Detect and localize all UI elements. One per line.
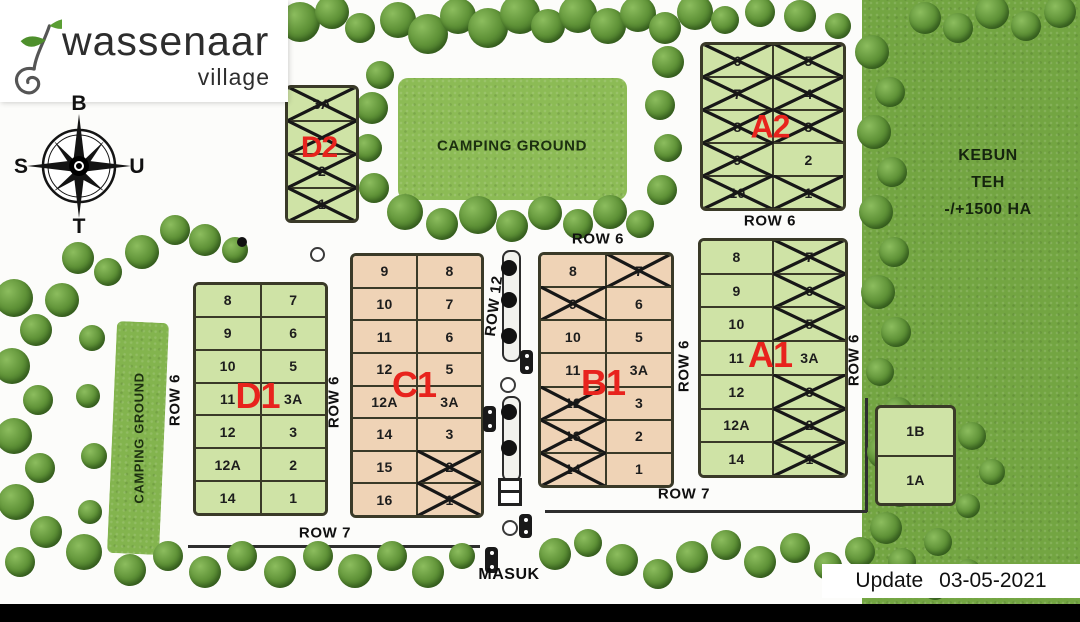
entrance-label: MASUK (470, 566, 548, 584)
row-label-d1-right: ROW 6 (326, 376, 343, 428)
tree-icon (30, 516, 62, 548)
compass-s: S (14, 155, 28, 178)
tree-icon (881, 317, 911, 347)
plot-A2-9: 9 (703, 142, 772, 175)
tree-icon (94, 258, 122, 286)
update-label: Update (855, 569, 923, 593)
crossed-out-marker (772, 374, 847, 410)
plot-B1-9: 9 (541, 286, 605, 319)
plot-B1-5: 5 (607, 319, 671, 352)
plot-number: 16 (376, 492, 392, 508)
plot-number: 1 (289, 490, 297, 506)
site-map: CAMPING GROUND CAMPING GROUND KEBUN TEH … (0, 0, 1080, 622)
compass-b: B (71, 94, 86, 115)
plot-number: 12 (728, 384, 744, 400)
plot-C1-8: 8 (418, 256, 481, 287)
tree-icon (574, 529, 602, 557)
plot-D1-8: 8 (196, 285, 260, 316)
marker-circle-icon (310, 247, 325, 262)
plot-number: 11 (565, 362, 580, 378)
camping-ground-left-label: CAMPING GROUND (132, 372, 147, 503)
plot-number: 2 (635, 428, 643, 444)
plot-C1-16: 16 (353, 482, 416, 515)
plot-B1-13: 13 (541, 419, 605, 452)
tree-icon (189, 224, 221, 256)
compass-rose-icon: B S U T (14, 94, 144, 234)
tree-icon (857, 115, 891, 149)
tree-icon (649, 12, 681, 44)
crossed-out-marker (416, 482, 483, 517)
tree-icon (387, 194, 423, 230)
plot-number: 5 (635, 329, 643, 345)
kebun-teh-label: KEBUN TEH -/+1500 HA (942, 142, 1034, 224)
crossed-out-marker (539, 452, 607, 487)
update-box: Update 03-05-2021 (822, 564, 1080, 598)
plot-number: 14 (728, 451, 744, 467)
plot-C1-1: 1 (418, 482, 481, 515)
block-AB: 1B1A (875, 405, 956, 506)
crossed-out-marker (772, 408, 847, 444)
block-label-A2: A2 (751, 108, 790, 145)
plot-C1-11: 11 (353, 319, 416, 352)
tree-icon (62, 242, 94, 274)
plot-number: 8 (224, 292, 232, 308)
tree-icon (643, 559, 673, 589)
plot-number: 11 (220, 391, 235, 407)
plot-A1-8: 8 (701, 241, 772, 273)
compass-u: U (129, 155, 144, 178)
tree-icon (0, 484, 34, 520)
plot-number: 11 (729, 350, 744, 366)
tree-icon (25, 453, 55, 483)
plot-A2-5: 5 (774, 45, 843, 76)
plot-number: 3A (284, 391, 303, 407)
plot-B1-6: 6 (607, 286, 671, 319)
crossed-out-marker (286, 187, 358, 223)
plot-D1-3: 3 (262, 414, 326, 447)
plot-C1-7: 7 (418, 287, 481, 320)
plot-number: 1A (906, 472, 925, 488)
plot-number: 12A (214, 457, 241, 473)
kebun-teh-line2: -/+1500 HA (942, 197, 1034, 224)
plot-number: 14 (376, 426, 392, 442)
plot-number: 10 (565, 329, 581, 345)
plot-B1-14: 14 (541, 452, 605, 485)
plot-B1-7: 7 (607, 255, 671, 286)
crossed-out-marker (539, 286, 607, 321)
plot-number: 12 (220, 424, 236, 440)
plot-A1-3: 3 (774, 374, 845, 408)
tree-icon (626, 210, 654, 238)
plot-A1-7: 7 (774, 241, 845, 273)
tree-icon (125, 235, 159, 269)
plot-number: 10 (376, 296, 392, 312)
tree-icon (711, 6, 739, 34)
plot-B1-10: 10 (541, 319, 605, 352)
tree-icon (76, 384, 100, 408)
plot-number: 1B (906, 423, 925, 439)
lamp-post-icon (501, 440, 517, 456)
plot-A1-9: 9 (701, 273, 772, 307)
tree-icon (711, 530, 741, 560)
plot-number: 6 (445, 329, 453, 345)
kebun-teh-line1: KEBUN TEH (942, 142, 1034, 196)
plot-number: 7 (445, 296, 453, 312)
crossed-out-marker (416, 450, 483, 485)
plot-A1-6: 6 (774, 273, 845, 307)
plot-number: 3 (445, 426, 453, 442)
tree-icon (654, 134, 682, 162)
tree-icon (958, 422, 986, 450)
plot-number: 7 (289, 292, 297, 308)
crossed-out-marker (539, 419, 607, 454)
tree-icon (870, 512, 902, 544)
row-label-b1-top: ROW 6 (572, 231, 624, 248)
crossed-out-marker (772, 43, 845, 78)
tree-icon (315, 0, 349, 29)
tree-icon (924, 528, 952, 556)
tree-icon (855, 35, 889, 69)
plot-number: 3 (635, 395, 643, 411)
crossed-out-marker (605, 253, 673, 288)
tree-icon (780, 533, 810, 563)
plot-B1-8: 8 (541, 255, 605, 286)
crossed-out-marker (772, 76, 845, 111)
plot-number: 9 (224, 325, 232, 341)
tree-icon (652, 46, 684, 78)
compass-t: T (73, 215, 86, 234)
tree-icon (0, 418, 32, 454)
lamp-post-icon (501, 404, 517, 420)
tree-icon (227, 541, 257, 571)
plot-A1-12A: 12A (701, 408, 772, 442)
plot-number: 10 (728, 316, 744, 332)
plot-A2-4: 4 (774, 76, 843, 109)
tree-icon (606, 544, 638, 576)
plot-D1-12: 12 (196, 414, 260, 447)
plot-number: 5 (445, 361, 453, 377)
crossed-out-marker (701, 142, 774, 177)
plot-C1-9: 9 (353, 256, 416, 287)
lamp-post-icon (501, 328, 517, 344)
tree-icon (45, 283, 79, 317)
utility-post-icon (520, 350, 533, 374)
brand-subtitle: village (0, 64, 270, 91)
tree-icon (528, 196, 562, 230)
marker-circle-icon (502, 520, 518, 536)
tree-icon (426, 208, 458, 240)
block-label-B1: B1 (581, 362, 625, 404)
plot-number: 8 (732, 249, 740, 265)
tree-icon (744, 546, 776, 578)
update-date: 03-05-2021 (939, 569, 1046, 593)
tree-icon (909, 2, 941, 34)
crossed-out-marker (772, 441, 847, 477)
tree-icon (5, 547, 35, 577)
row-label-a1-top: ROW 6 (744, 213, 796, 230)
utility-post-icon (483, 406, 496, 432)
plot-A2-10: 10 (703, 175, 772, 208)
tree-icon (79, 325, 105, 351)
plot-number: 8 (569, 263, 577, 279)
crossed-out-marker (772, 273, 847, 309)
plot-C1-2: 2 (418, 450, 481, 483)
row-label-d1-bottom: ROW 7 (299, 525, 351, 542)
tree-icon (0, 348, 30, 384)
plot-C1-6: 6 (418, 319, 481, 352)
tree-icon (784, 0, 816, 32)
tree-icon (338, 554, 372, 588)
tree-icon (20, 314, 52, 346)
brand-title: wassenaar (62, 18, 269, 65)
tree-icon (160, 215, 190, 245)
tree-icon (412, 556, 444, 588)
tree-icon (647, 175, 677, 205)
tree-icon (677, 0, 713, 30)
plot-number: 12A (723, 417, 750, 433)
tree-icon (345, 13, 375, 43)
plot-A1-2: 2 (774, 408, 845, 442)
plot-C1-14: 14 (353, 417, 416, 450)
tree-icon (153, 541, 183, 571)
tree-icon (496, 210, 528, 242)
crossed-out-marker (701, 43, 774, 78)
block-AB-column: 1B1A (878, 408, 953, 503)
plot-B1-2: 2 (607, 419, 671, 452)
tree-icon (23, 385, 53, 415)
plot-number: 9 (380, 263, 388, 279)
block-label-C1: C1 (392, 364, 436, 406)
plot-D1-7: 7 (262, 285, 326, 316)
plot-number: 10 (220, 358, 236, 374)
plot-B1-1: 1 (607, 452, 671, 485)
plot-number: 3A (800, 350, 819, 366)
crossed-out-marker (772, 239, 847, 275)
marker-circle-icon (500, 377, 516, 393)
gate-house-icon (498, 478, 522, 506)
plot-D1-1: 1 (262, 480, 326, 513)
block-label-A1: A1 (748, 334, 792, 376)
plot-number: 6 (289, 325, 297, 341)
tree-icon (645, 90, 675, 120)
plot-number: 5 (289, 358, 297, 374)
tree-icon (66, 534, 102, 570)
plot-number: 14 (220, 490, 236, 506)
plot-C1-10: 10 (353, 287, 416, 320)
tree-icon (377, 541, 407, 571)
plot-C1-15: 15 (353, 450, 416, 483)
crossed-out-marker (701, 175, 774, 210)
tree-icon (189, 556, 221, 588)
tree-icon (845, 537, 875, 567)
plot-number: 6 (635, 296, 643, 312)
road-edge-line (545, 510, 867, 513)
plot-number: 2 (289, 457, 297, 473)
plot-A2-2: 2 (774, 142, 843, 175)
crossed-out-marker (772, 175, 845, 210)
plot-number: 8 (445, 263, 453, 279)
tree-icon (264, 556, 296, 588)
tree-icon (114, 554, 146, 586)
tree-icon (877, 157, 907, 187)
plot-number: 3 (289, 424, 297, 440)
letterbox-bar (0, 604, 1080, 622)
tree-icon (593, 195, 627, 229)
tree-icon (875, 77, 905, 107)
tree-icon (303, 541, 333, 571)
row-label-a1-right: ROW 6 (846, 334, 863, 386)
block-label-D1: D1 (235, 375, 279, 417)
plot-D2-1: 1 (288, 187, 356, 221)
plot-D1-12A: 12A (196, 447, 260, 480)
plot-number: 2 (804, 152, 812, 168)
block-label-D2: D2 (301, 131, 337, 165)
camping-ground-top-label: CAMPING GROUND (437, 138, 587, 155)
plot-D1-9: 9 (196, 316, 260, 349)
plot-AB-1A: 1A (878, 455, 953, 504)
plot-number: 15 (376, 459, 392, 475)
plot-number: 12 (376, 361, 392, 377)
tree-icon (366, 61, 394, 89)
tree-icon (943, 13, 973, 43)
tree-icon (81, 443, 107, 469)
plot-A2-1: 1 (774, 175, 843, 208)
lamp-post-icon (501, 260, 517, 276)
tree-icon (879, 237, 909, 267)
tree-icon (459, 196, 497, 234)
tree-icon (825, 13, 851, 39)
tree-icon (866, 358, 894, 386)
plot-number: 3A (440, 394, 459, 410)
plot-D1-2: 2 (262, 447, 326, 480)
plot-number: 1 (635, 461, 643, 477)
plot-A2-6: 6 (703, 45, 772, 76)
tree-icon (979, 459, 1005, 485)
tree-icon (359, 173, 389, 203)
tree-icon (356, 92, 388, 124)
utility-post-icon (519, 514, 532, 538)
plot-A1-1: 1 (774, 441, 845, 475)
plot-A2-7: 7 (703, 76, 772, 109)
row-label-d1-left: ROW 6 (167, 374, 184, 426)
tree-icon (956, 494, 980, 518)
plot-A1-14: 14 (701, 441, 772, 475)
tree-icon (861, 275, 895, 309)
plot-number: 9 (732, 283, 740, 299)
crossed-out-marker (286, 86, 358, 122)
plot-D1-6: 6 (262, 316, 326, 349)
tree-icon (676, 541, 708, 573)
plot-AB-1B: 1B (878, 408, 953, 455)
tree-icon (745, 0, 775, 27)
plot-A1-12: 12 (701, 374, 772, 408)
row-label-b1-bottom: ROW 7 (658, 486, 710, 503)
plot-C1-3: 3 (418, 417, 481, 450)
plot-D1-14: 14 (196, 480, 260, 513)
row-label-b1-right: ROW 6 (676, 340, 693, 392)
plot-number: 11 (377, 329, 392, 345)
plot-D2-3A: 3A (288, 88, 356, 120)
tree-icon (859, 195, 893, 229)
crossed-out-marker (701, 76, 774, 111)
lamp-post-icon (501, 292, 517, 308)
tree-icon (78, 500, 102, 524)
plot-number: 3A (630, 362, 649, 378)
marker-dot-icon (237, 237, 247, 247)
tree-icon (0, 279, 33, 317)
tree-icon (1011, 11, 1041, 41)
